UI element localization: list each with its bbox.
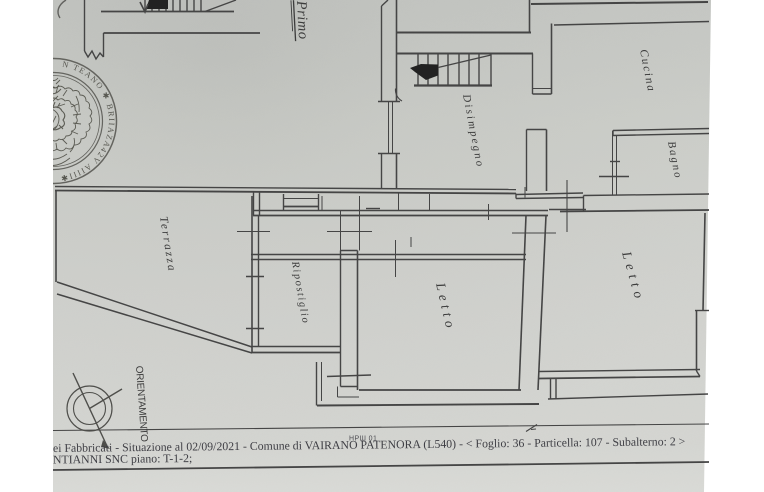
- svg-text:NTIANNI SNC piano: T-1-2;: NTIANNI SNC piano: T-1-2;: [53, 451, 192, 467]
